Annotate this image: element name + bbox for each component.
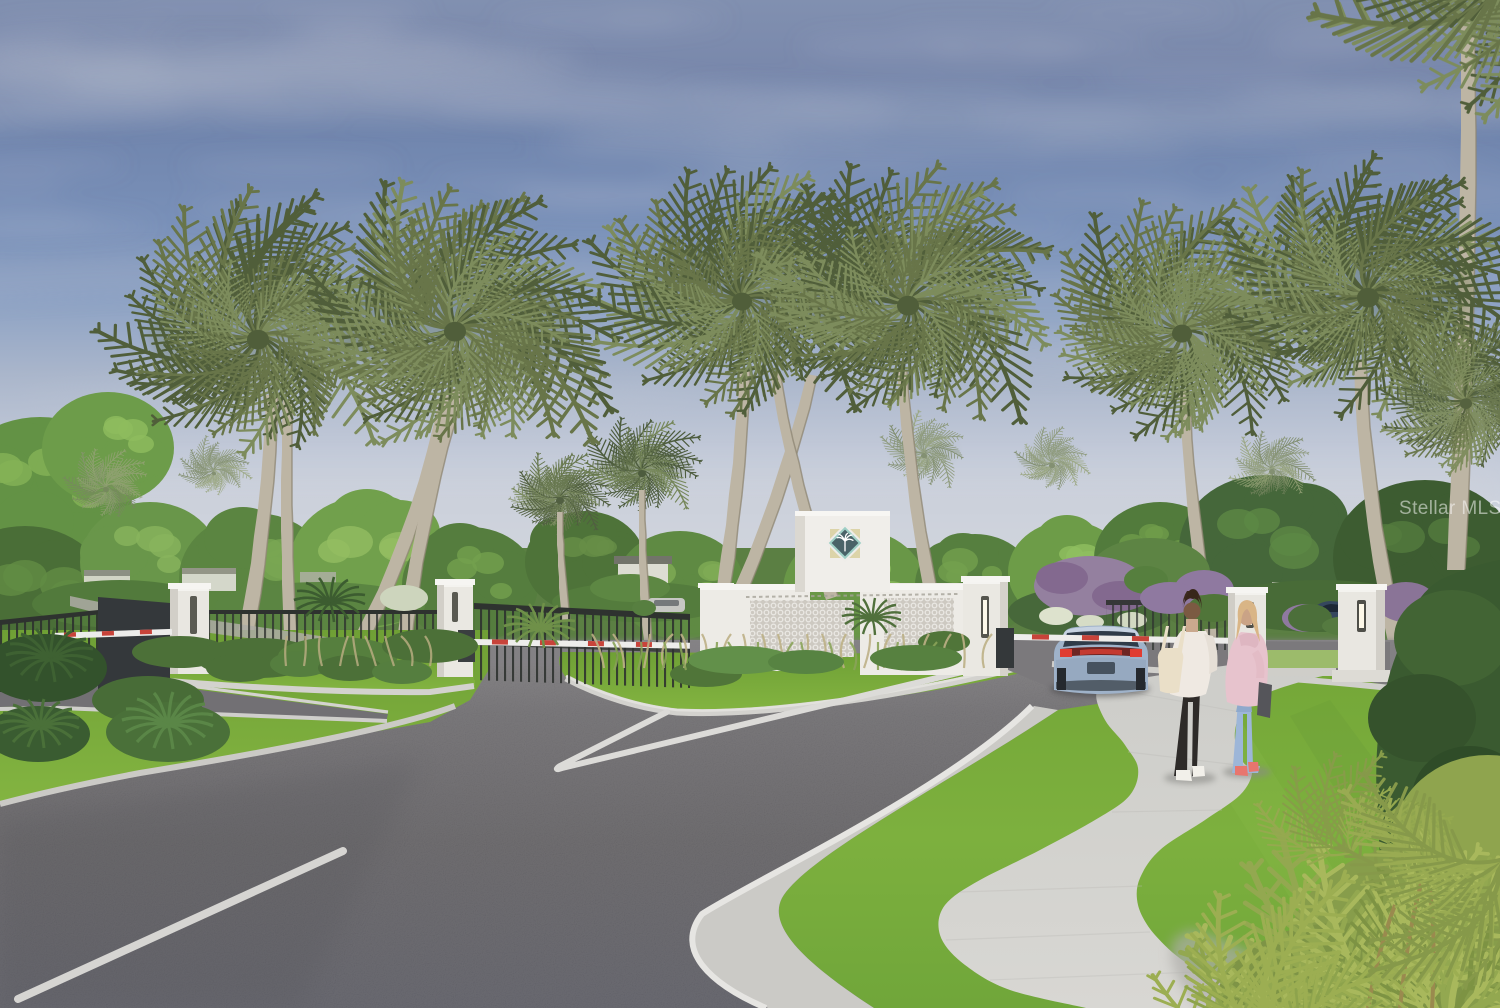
svg-text:Stellar MLS: Stellar MLS	[1399, 498, 1500, 519]
